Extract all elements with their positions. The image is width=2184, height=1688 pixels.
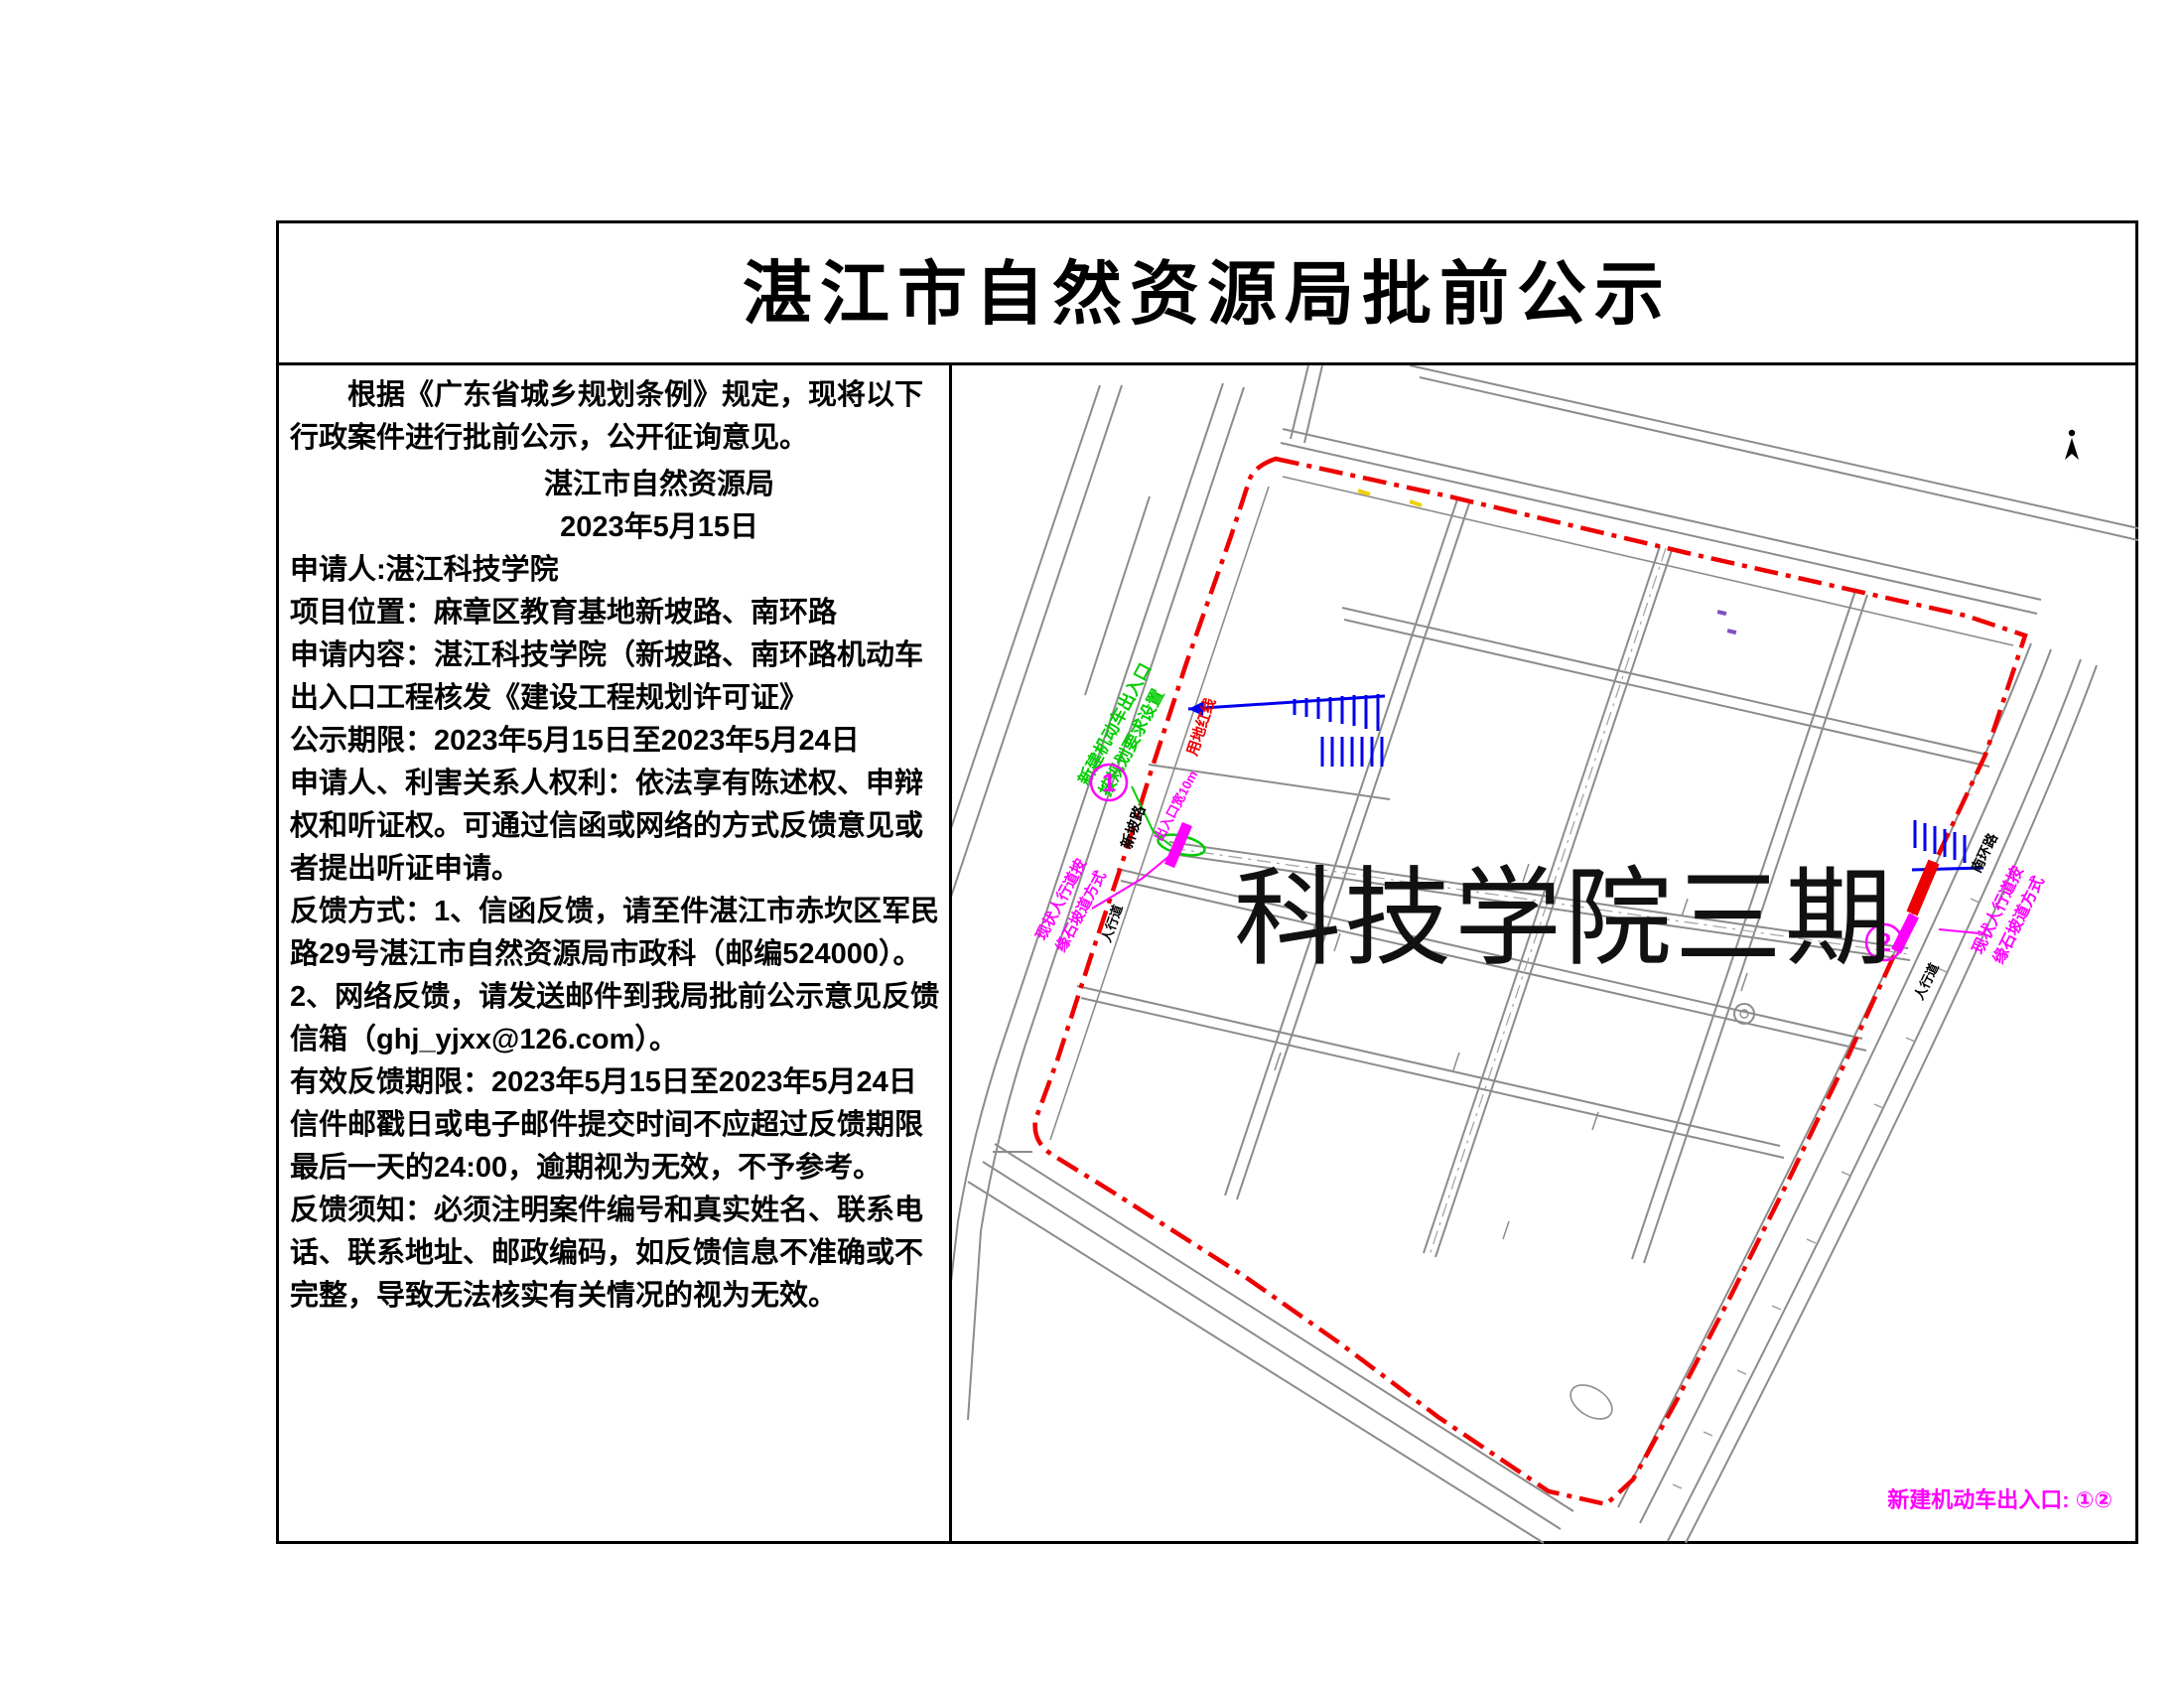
location-line: 项目位置：麻章区教育基地新坡路、南环路 [290, 592, 941, 634]
site-map-panel: 用地红线 新建机动车出入口 按规划要求设置 新坡路 人行道 出入口宽10m 现状… [952, 365, 2138, 1544]
north-arrow-icon [2065, 430, 2079, 460]
entrance-legend: 新建机动车出入口: ①② [1887, 1487, 2113, 1512]
rights-paragraph: 申请人、利害关系人权利：依法享有陈述权、申辩权和听证权。可通过信函或网络的方式反… [290, 763, 941, 891]
chainage-ticks [1673, 899, 1979, 1488]
signature-date: 2023年5月15日 [290, 506, 774, 549]
valid-period-line: 有效反馈期限：2023年5月15日至2023年5月24日 [290, 1061, 941, 1104]
page-title: 湛江市自然资源局批前公示 [276, 238, 2138, 339]
road-label-xinpo: 新坡路 [1118, 802, 1150, 851]
notice-text-column: 根据《广东省城乡规划条例》规定，现将以下行政案件进行批前公示，公开征询意见。 湛… [290, 374, 941, 1318]
feedback-web-paragraph: 2、网络反馈，请发送邮件到我局批前公示意见反馈信箱（ghj_yjxx@126.c… [290, 976, 941, 1061]
site-map: 用地红线 新建机动车出入口 按规划要求设置 新坡路 人行道 出入口宽10m 现状… [952, 365, 2138, 1544]
entrance1-badge-number: 1 [1102, 768, 1116, 797]
violet-marks [1717, 610, 1737, 634]
intro-paragraph: 根据《广东省城乡规划条例》规定，现将以下行政案件进行批前公示，公开征询意见。 [290, 374, 941, 460]
deadline-note: 信件邮戳日或电子邮件提交时间不应超过反馈期限最后一天的24:00，逾期视为无效，… [290, 1104, 941, 1190]
signature-block: 湛江市自然资源局 2023年5月15日 [290, 464, 941, 549]
signature-agency: 湛江市自然资源局 [290, 464, 774, 506]
entrance1-width-note: 出入口宽10m [1151, 768, 1200, 843]
land-boundary-redline [1035, 459, 2025, 1504]
public-notice-page: { "document": { "title": "湛江市自然资源局批前公示",… [0, 0, 2184, 1688]
period-line: 公示期限：2023年5月15日至2023年5月24日 [290, 720, 941, 763]
magenta-leader-2 [1939, 929, 1979, 933]
content-line: 申请内容：湛江科技学院（新坡路、南环路机动车出入口工程核发《建设工程规划许可证》 [290, 634, 941, 720]
boundary-yellow-ticks [1358, 491, 1422, 505]
applicant-line: 申请人:湛江科技学院 [290, 549, 941, 592]
feedback-mail-paragraph: 反馈方式：1、信函反馈，请至件湛江市赤坎区军民路29号湛江市自然资源局市政科（邮… [290, 891, 941, 976]
notice-paragraph: 反馈须知：必须注明案件编号和真实姓名、联系电话、联系地址、邮政编码，如反馈信息不… [290, 1190, 941, 1318]
site-name-text: 科技学院三期 [1234, 861, 1895, 979]
